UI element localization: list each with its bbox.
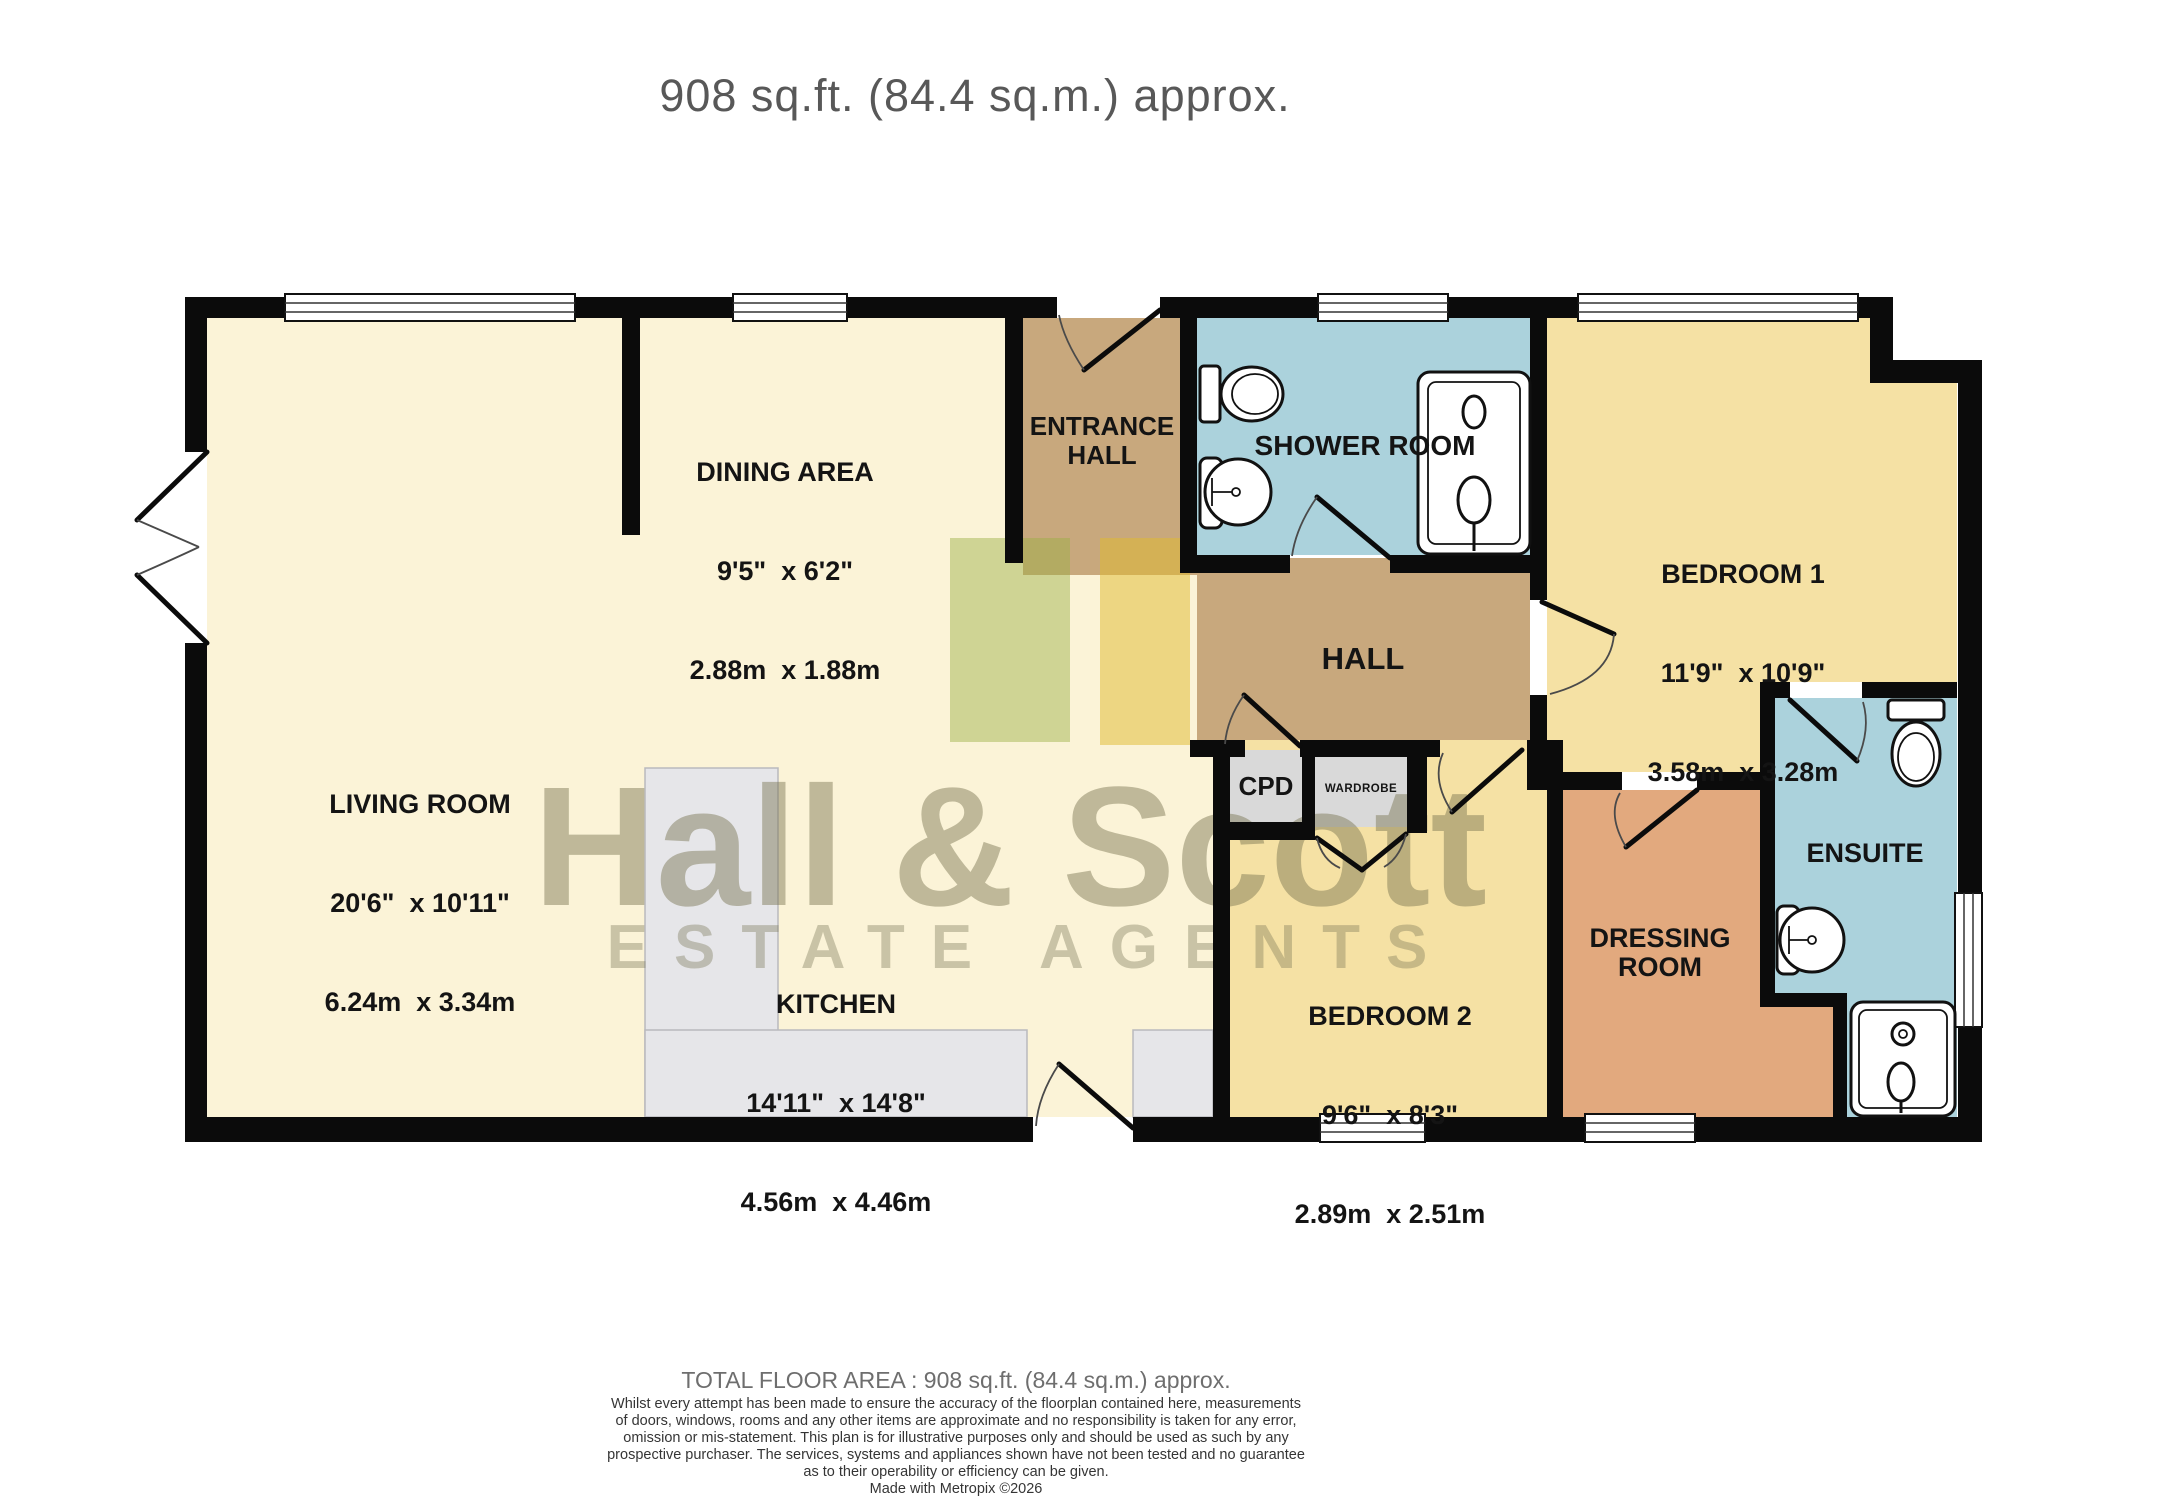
toilet-icon (1200, 366, 1283, 422)
dressing-room-notch (1760, 1007, 1833, 1117)
window-icon (1318, 294, 1448, 321)
room-label-dressing-room: DRESSING ROOM (1540, 924, 1780, 982)
room-label-hall: HALL (1263, 642, 1463, 675)
window-icon (1578, 294, 1858, 321)
disclaimer-line: of doors, windows, rooms and any other i… (456, 1413, 1456, 1430)
room-label-kitchen: KITCHEN 14'11" x 14'8" 4.56m x 4.46m (646, 922, 1026, 1285)
window-icon (1585, 1114, 1695, 1142)
disclaimer-line: prospective purchaser. The services, sys… (456, 1447, 1456, 1464)
total-floor-area: TOTAL FLOOR AREA : 908 sq.ft. (84.4 sq.m… (356, 1367, 1556, 1394)
room-label-shower-room: SHOWER ROOM (1165, 429, 1565, 462)
sink-icon (1777, 906, 1844, 974)
window-icon (285, 294, 575, 321)
disclaimer: Whilst every attempt has been made to en… (456, 1396, 1456, 1498)
room-label-wardrobe: WARDROBE (1303, 783, 1419, 796)
disclaimer-line: omission or mis-statement. This plan is … (456, 1430, 1456, 1447)
room-label-living: LIVING ROOM 20'6" x 10'11" 6.24m x 3.34m (230, 722, 610, 1085)
window-icon (733, 294, 847, 321)
disclaimer-line: as to their operability or efficiency ca… (456, 1464, 1456, 1481)
door-swing-icon (137, 452, 207, 643)
room-label-bedroom2: BEDROOM 2 9'6" x 8'3" 2.89m x 2.51m (1205, 934, 1575, 1297)
counter-bottom-right (1133, 1030, 1213, 1117)
room-label-bedroom1: BEDROOM 1 11'9" x 10'9" 3.58m x 3.28m (1553, 492, 1933, 855)
floorplan-page: 908 sq.ft. (84.4 sq.m.) approx. (0, 0, 2166, 1500)
room-label-ensuite: ENSUITE (1755, 837, 1975, 870)
disclaimer-line: Whilst every attempt has been made to en… (456, 1396, 1456, 1413)
metropix-credit: Made with Metropix ©2026 (456, 1481, 1456, 1498)
room-label-dining: DINING AREA 9'5" x 6'2" 2.88m x 1.88m (595, 390, 975, 753)
window-icon (1955, 893, 1982, 1027)
watermark-gold-block (1100, 538, 1190, 745)
shower-tray-icon (1851, 1002, 1955, 1116)
shower-enclosure-icon (1418, 372, 1530, 554)
